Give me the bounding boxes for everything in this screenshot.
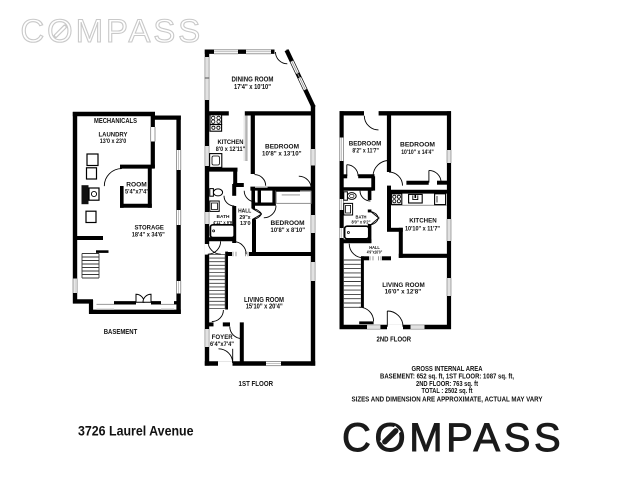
svg-text:4'9"x16'0": 4'9"x16'0" xyxy=(367,250,383,255)
svg-text:13'0 x 23'0: 13'0 x 23'0 xyxy=(100,138,127,145)
svg-text:8'0 x 12'11": 8'0 x 12'11" xyxy=(216,146,246,153)
svg-text:10'8" x 8'10": 10'8" x 8'10" xyxy=(271,227,306,234)
svg-text:8'0" x 9'2": 8'0" x 9'2" xyxy=(352,220,371,225)
svg-text:FOYER: FOYER xyxy=(212,335,234,341)
svg-text:2ND FLOOR: 763 sq. ft: 2ND FLOOR: 763 sq. ft xyxy=(416,381,479,388)
svg-text:15'10" x 20'4": 15'10" x 20'4" xyxy=(246,304,283,311)
svg-text:2ND FLOOR: 2ND FLOOR xyxy=(377,335,412,344)
svg-text:SIZES AND DIMENSION ARE APPROX: SIZES AND DIMENSION ARE APPROXIMATE, ACT… xyxy=(352,397,543,404)
svg-text:DINING ROOM: DINING ROOM xyxy=(232,77,274,84)
svg-text:KITCHEN: KITCHEN xyxy=(218,139,244,146)
svg-text:COMPASS: COMPASS xyxy=(21,12,204,49)
svg-text:GROSS INTERNAL AREA: GROSS INTERNAL AREA xyxy=(412,366,483,373)
svg-text:BASEMENT: 652 sq. ft, 1ST FLOO: BASEMENT: 652 sq. ft, 1ST FLOOR: 1087 sq… xyxy=(380,373,514,380)
svg-text:4'11" x 9'9": 4'11" x 9'9" xyxy=(213,220,234,226)
svg-text:HALL: HALL xyxy=(238,209,252,215)
svg-text:KITCHEN: KITCHEN xyxy=(409,218,437,225)
svg-text:8'2" x 11'7": 8'2" x 11'7" xyxy=(352,147,379,154)
svg-text:10'10" x 11'7": 10'10" x 11'7" xyxy=(405,226,440,233)
svg-text:10'10" x 14'4": 10'10" x 14'4" xyxy=(401,149,434,156)
svg-text:1ST FLOOR: 1ST FLOOR xyxy=(239,379,274,388)
svg-text:BASEMENT: BASEMENT xyxy=(104,327,138,336)
svg-text:COMPASS: COMPASS xyxy=(342,416,564,460)
svg-text:3726 Laurel Avenue: 3726 Laurel Avenue xyxy=(78,423,194,439)
svg-text:TOTAL : 2502 sq. ft: TOTAL : 2502 sq. ft xyxy=(422,388,474,395)
svg-text:BEDROOM: BEDROOM xyxy=(400,141,435,148)
svg-text:MECHANICALS: MECHANICALS xyxy=(94,118,137,125)
svg-text:6'4"x7'4": 6'4"x7'4" xyxy=(210,342,234,348)
svg-text:13'0: 13'0 xyxy=(240,221,251,227)
svg-text:17'4" x 10'10": 17'4" x 10'10" xyxy=(234,84,271,91)
svg-text:BATH: BATH xyxy=(217,214,231,220)
svg-text:ROOM: ROOM xyxy=(126,181,147,188)
svg-text:10'8" x 13'10": 10'8" x 13'10" xyxy=(262,150,302,157)
svg-text:5'4"x7'4": 5'4"x7'4" xyxy=(125,189,149,196)
svg-text:16'0" x 12'8": 16'0" x 12'8" xyxy=(385,289,422,296)
svg-text:BEDROOM: BEDROOM xyxy=(349,140,382,147)
svg-text:18'4" x 34'6": 18'4" x 34'6" xyxy=(132,231,165,238)
